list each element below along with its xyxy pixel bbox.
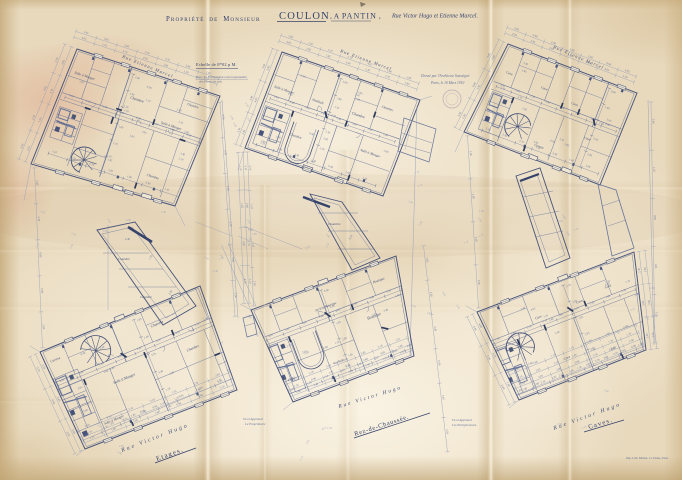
svg-text:2.10: 2.10 xyxy=(248,278,251,284)
svg-text:3.10: 3.10 xyxy=(558,220,563,223)
svg-text:1.35: 1.35 xyxy=(224,150,227,156)
svg-text:4.05: 4.05 xyxy=(653,215,656,221)
svg-text:1.60: 1.60 xyxy=(479,210,484,213)
svg-text:0.90: 0.90 xyxy=(242,241,245,247)
svg-text:Nota: les Entrepreneurs sont r: Nota: les Entrepreneurs sont responsable… xyxy=(195,75,248,79)
svg-text:2.85: 2.85 xyxy=(119,445,124,448)
svg-text:2.40: 2.40 xyxy=(226,186,229,192)
svg-text:3.70: 3.70 xyxy=(248,165,251,171)
svg-text:1.10: 1.10 xyxy=(229,221,232,227)
svg-text:2.60: 2.60 xyxy=(245,203,248,209)
svg-text:Vu et Approuvé: Vu et Approuvé xyxy=(452,418,473,422)
svg-text:1.10: 1.10 xyxy=(652,167,655,173)
svg-text:Chambre: Chambre xyxy=(328,222,341,226)
svg-text:1.60: 1.60 xyxy=(471,194,474,200)
svg-text:Le Propriétaire: Le Propriétaire xyxy=(244,422,266,426)
svg-text:2.40: 2.40 xyxy=(213,270,218,273)
svg-text:2.60: 2.60 xyxy=(42,324,45,330)
svg-text:Dressé par l'Architecte Soussi: Dressé par l'Architecte Soussigné xyxy=(420,74,470,78)
svg-text:1.35: 1.35 xyxy=(327,427,332,430)
svg-text:Les Entrepreneurs.: Les Entrepreneurs. xyxy=(451,423,477,427)
svg-text:Echelle de 0m02 p M.: Echelle de 0m02 p M. xyxy=(196,62,237,67)
svg-text:3.70: 3.70 xyxy=(247,241,250,247)
svg-text:2.40: 2.40 xyxy=(127,418,132,421)
svg-text:3.40: 3.40 xyxy=(474,237,477,243)
svg-text:1.85: 1.85 xyxy=(231,257,234,263)
svg-text:1.60: 1.60 xyxy=(557,423,562,426)
svg-text:1.85: 1.85 xyxy=(252,233,257,236)
svg-text:0.90: 0.90 xyxy=(477,280,480,286)
svg-text:PROPRIÉTÉ DE MONSIEUR: PROPRIÉTÉ DE MONSIEUR xyxy=(166,15,261,23)
svg-text:2.40: 2.40 xyxy=(125,238,130,241)
svg-text:2.40: 2.40 xyxy=(35,180,38,186)
svg-text:1.10: 1.10 xyxy=(250,204,253,210)
svg-text:1.35: 1.35 xyxy=(251,242,254,248)
svg-text:3.10: 3.10 xyxy=(244,165,247,171)
svg-text:Rue Victor Hugo et Etienne Mar: Rue Victor Hugo et Etienne Marcel. xyxy=(391,14,478,20)
svg-text:des erreurs de cote.: des erreurs de cote. xyxy=(199,80,223,84)
svg-text:2.85: 2.85 xyxy=(103,230,108,233)
svg-text:1.85: 1.85 xyxy=(469,151,472,157)
svg-text:Vu et Approuvé: Vu et Approuvé xyxy=(243,417,264,421)
svg-text:2.60: 2.60 xyxy=(650,287,655,290)
svg-text:1.85: 1.85 xyxy=(592,425,597,428)
svg-text:1.85: 1.85 xyxy=(654,263,657,269)
svg-text:0.90: 0.90 xyxy=(234,293,237,299)
svg-text:3.10: 3.10 xyxy=(37,216,40,222)
svg-text:1.10: 1.10 xyxy=(239,165,242,171)
svg-text:2.85: 2.85 xyxy=(253,281,256,287)
svg-text:, A PANTIN ,: , A PANTIN , xyxy=(330,12,381,21)
svg-text:1.85: 1.85 xyxy=(240,203,243,209)
svg-text:0.90: 0.90 xyxy=(38,252,41,258)
svg-text:Chambre: Chambre xyxy=(118,257,130,261)
svg-text:3.70: 3.70 xyxy=(221,114,224,120)
svg-text:COULON: COULON xyxy=(279,11,330,22)
svg-text:1.60: 1.60 xyxy=(161,211,166,214)
svg-text:0.90: 0.90 xyxy=(126,219,131,222)
svg-text:0.90: 0.90 xyxy=(40,288,43,294)
svg-text:3.40: 3.40 xyxy=(651,119,654,125)
svg-text:Chambre: Chambre xyxy=(140,295,152,299)
